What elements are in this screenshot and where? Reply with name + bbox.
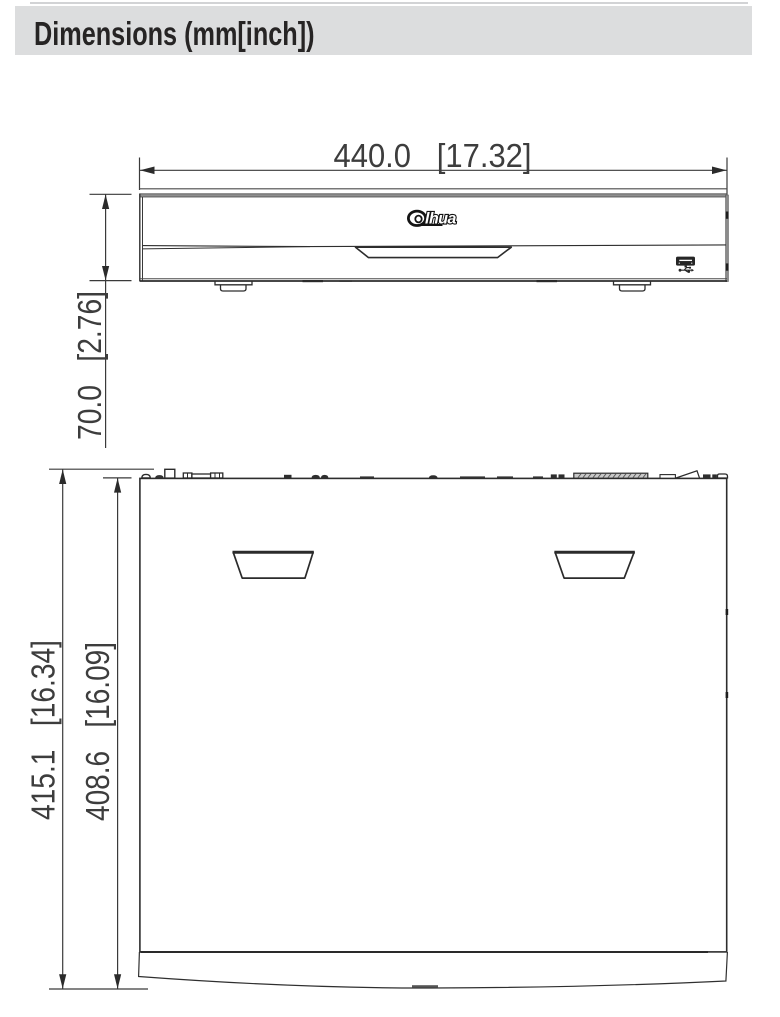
- svg-text:70.0 [2.76]: 70.0 [2.76]: [71, 291, 108, 440]
- svg-text:440.0 [17.32]: 440.0 [17.32]: [334, 137, 532, 174]
- svg-text:415.1 [16.34]: 415.1 [16.34]: [25, 640, 62, 820]
- svg-text:408.6 [16.09]: 408.6 [16.09]: [79, 642, 116, 821]
